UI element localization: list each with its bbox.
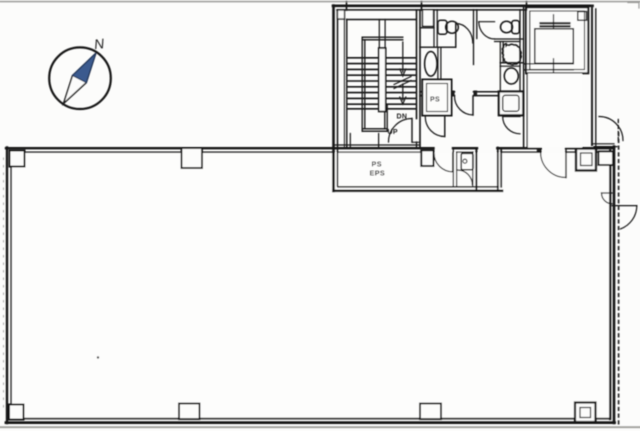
svg-text:N: N	[93, 36, 105, 52]
svg-text:PS: PS	[372, 160, 382, 169]
svg-text:EPS: EPS	[370, 169, 386, 178]
svg-text:PS: PS	[430, 97, 440, 104]
